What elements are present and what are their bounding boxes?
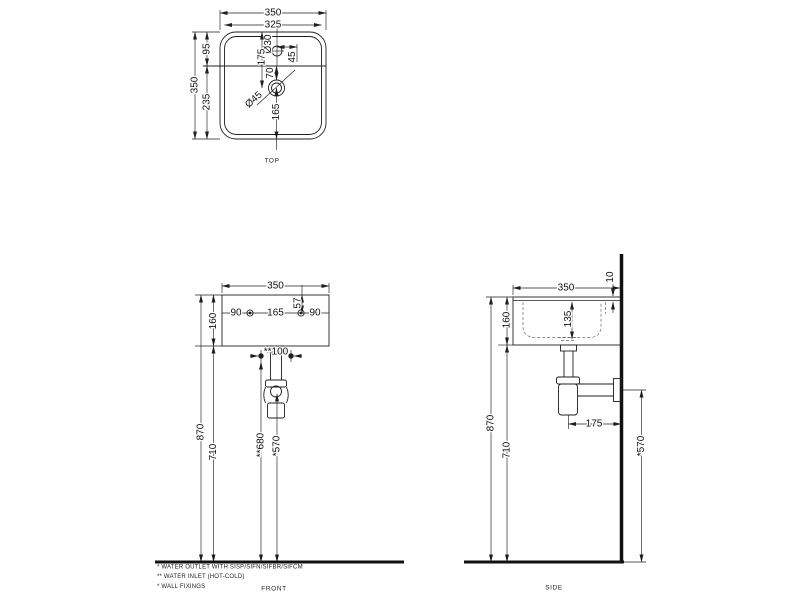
trap-body-left	[264, 387, 266, 403]
dim-top-ledge-to-drain: 70	[265, 67, 276, 79]
front-view: 90 165 90 57 350 160 870 710	[155, 281, 404, 593]
dim-top-faucet-offset: 45	[287, 51, 298, 63]
dim-side-rim-height: 870	[486, 414, 497, 431]
waste-flange-side	[561, 345, 577, 351]
dim-top-depth-overall: 350	[190, 76, 201, 93]
dim-front-width: 350	[267, 281, 284, 292]
dim-drain-dia: Ø45	[243, 89, 265, 110]
drain-seat-hidden	[558, 338, 578, 341]
drain-diagonal-leader	[257, 70, 295, 105]
trap-body-right	[287, 387, 289, 403]
dim-top-width-overall: 350	[265, 8, 282, 19]
note-wall-fixings: * WALL FIXINGS	[157, 584, 205, 590]
dim-front-rim-height: 870	[196, 423, 207, 440]
top-view-label: TOP	[264, 158, 279, 165]
dim-top-rear-to-drain: 175	[257, 48, 268, 65]
dim-front-inlet-spacing: **100	[264, 347, 289, 358]
trap-union	[271, 386, 282, 397]
dim-side-trap-to-wall: 175	[586, 419, 603, 430]
basin-drawing-svg: Ø30 Ø45 350 325 95 350 235 175 45 70 165	[0, 0, 800, 600]
basin-front-face	[222, 295, 329, 346]
dim-front-inlet-height: **680	[256, 432, 267, 457]
fixing-hole-left-center	[249, 312, 252, 315]
dim-front-outlet-height: *570	[272, 435, 283, 456]
side-view-label: SIDE	[545, 585, 563, 592]
dim-front-fix-left: 90	[230, 308, 242, 319]
dim-front-rim-to-fix: 57	[293, 297, 304, 309]
trap-cup	[268, 403, 285, 418]
technical-drawing-sheet: Ø30 Ø45 350 325 95 350 235 175 45 70 165	[0, 0, 800, 600]
top-view: Ø30 Ø45 350 325 95 350 235 175 45 70 165	[190, 8, 327, 165]
dim-top-width-inner: 325	[265, 20, 282, 31]
note-water-inlet: ** WATER INLET (HOT-COLD)	[157, 574, 245, 580]
side-view: 350 10 160 870 710 135 175 *570	[464, 254, 647, 592]
dim-top-drain-to-front: 165	[271, 103, 282, 120]
dim-side-outlet-height: *570	[636, 435, 647, 456]
trap-bottle-side	[559, 384, 578, 415]
trap-nut-side	[557, 377, 580, 384]
dim-front-underside-height: 710	[208, 443, 219, 460]
dim-side-bowl-depth: 135	[563, 310, 574, 327]
dim-side-rear-gap: 10	[605, 271, 616, 283]
front-view-label: FRONT	[261, 586, 286, 593]
note-water-outlet: * WATER OUTLET WITH SISP/SIFN/SIFBR/SIFC…	[157, 565, 303, 571]
dim-top-ledge-to-front: 235	[202, 93, 213, 110]
dim-side-depth: 350	[558, 283, 575, 294]
water-inlet-right	[288, 353, 293, 358]
dim-front-fix-right: 90	[309, 308, 321, 319]
dim-top-rear-to-ledge: 95	[202, 43, 213, 55]
dim-front-basin-height: 160	[208, 312, 219, 329]
bowl-hidden-outline	[523, 302, 601, 338]
dim-front-fix-span: 165	[267, 308, 284, 319]
dim-side-basin-height: 160	[502, 311, 513, 328]
dim-side-underside-height: 710	[502, 441, 513, 458]
